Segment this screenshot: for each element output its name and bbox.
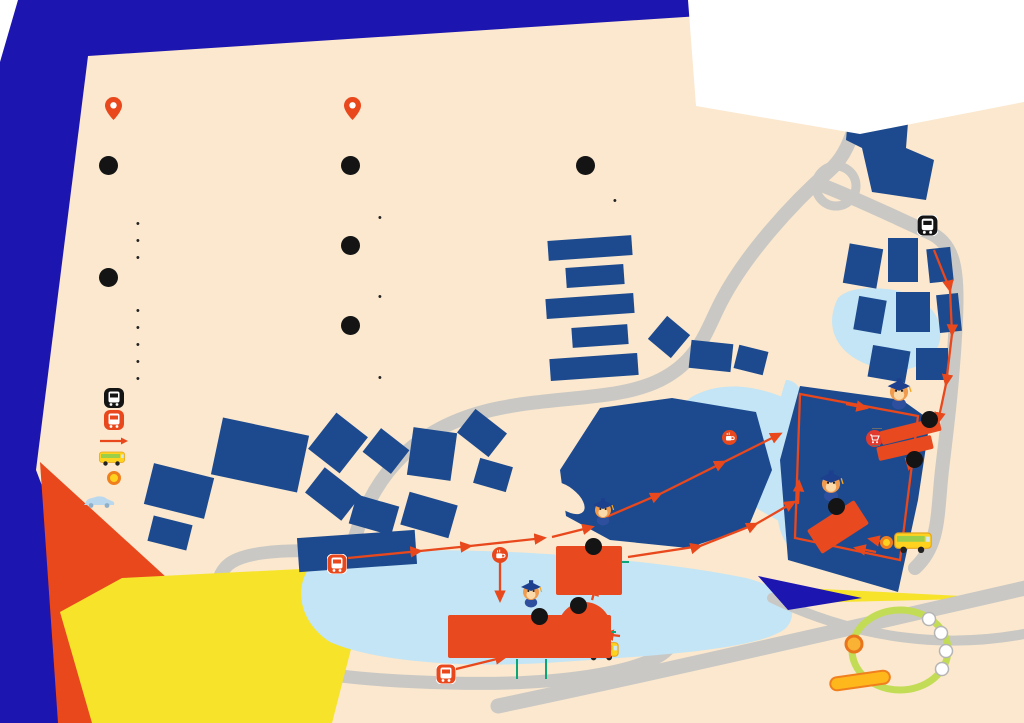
map-marker-6 bbox=[828, 498, 845, 515]
connector-line bbox=[872, 428, 882, 429]
map-marker-4 bbox=[921, 411, 938, 428]
connector-line bbox=[545, 659, 547, 679]
venue-4-number bbox=[341, 236, 360, 255]
public-bus-stop-icon bbox=[104, 410, 124, 435]
venue-3-number bbox=[341, 156, 360, 175]
list-item bbox=[136, 303, 140, 320]
map-marker-1 bbox=[531, 608, 548, 625]
list-item bbox=[136, 250, 140, 267]
map-marker-2 bbox=[570, 597, 587, 614]
list-item bbox=[378, 370, 382, 387]
list-item bbox=[613, 193, 617, 210]
starbucks-coffee-icon bbox=[722, 430, 737, 450]
location-pin-icon bbox=[344, 97, 361, 125]
car-icon bbox=[82, 494, 116, 514]
public-bus-stop-icon bbox=[327, 554, 347, 579]
venue-6-number bbox=[576, 156, 595, 175]
utown-shuttle-bus-icon bbox=[99, 450, 125, 472]
utown-shuttle-bus-stop-icon bbox=[880, 536, 893, 549]
venue-2-bullets bbox=[136, 303, 140, 388]
cafe-agora-coffee-icon bbox=[492, 547, 508, 568]
venue-3-bullets bbox=[378, 210, 382, 227]
list-item bbox=[378, 210, 382, 227]
walk-path-icon bbox=[99, 433, 129, 451]
venue-6-bullets bbox=[613, 193, 617, 210]
venue-5-bullets bbox=[378, 370, 382, 387]
public-bus-stop-icon bbox=[436, 664, 456, 689]
utown-shuttle-bus-stop-icon bbox=[107, 471, 121, 485]
venue-2-number bbox=[99, 268, 118, 287]
map-marker-3 bbox=[585, 538, 602, 555]
connector-line bbox=[516, 659, 518, 679]
list-item bbox=[136, 233, 140, 250]
open-house-map-poster bbox=[0, 0, 1024, 723]
location-pin-icon bbox=[105, 97, 122, 125]
list-item bbox=[378, 289, 382, 306]
list-item bbox=[136, 354, 140, 371]
list-item bbox=[136, 371, 140, 388]
list-item bbox=[136, 320, 140, 337]
list-item bbox=[136, 216, 140, 233]
corner-fold bbox=[0, 0, 18, 62]
venue-1-number bbox=[99, 156, 118, 175]
venue-5-number bbox=[341, 316, 360, 335]
utown-shuttle-bus-icon bbox=[894, 530, 932, 560]
internal-shuttle-bus-stop-icon bbox=[917, 215, 938, 241]
venue-4-bullets bbox=[378, 289, 382, 306]
map-marker-5 bbox=[906, 451, 923, 468]
connector-line bbox=[622, 561, 629, 563]
list-item bbox=[136, 337, 140, 354]
venue-1-bullets bbox=[136, 216, 140, 267]
